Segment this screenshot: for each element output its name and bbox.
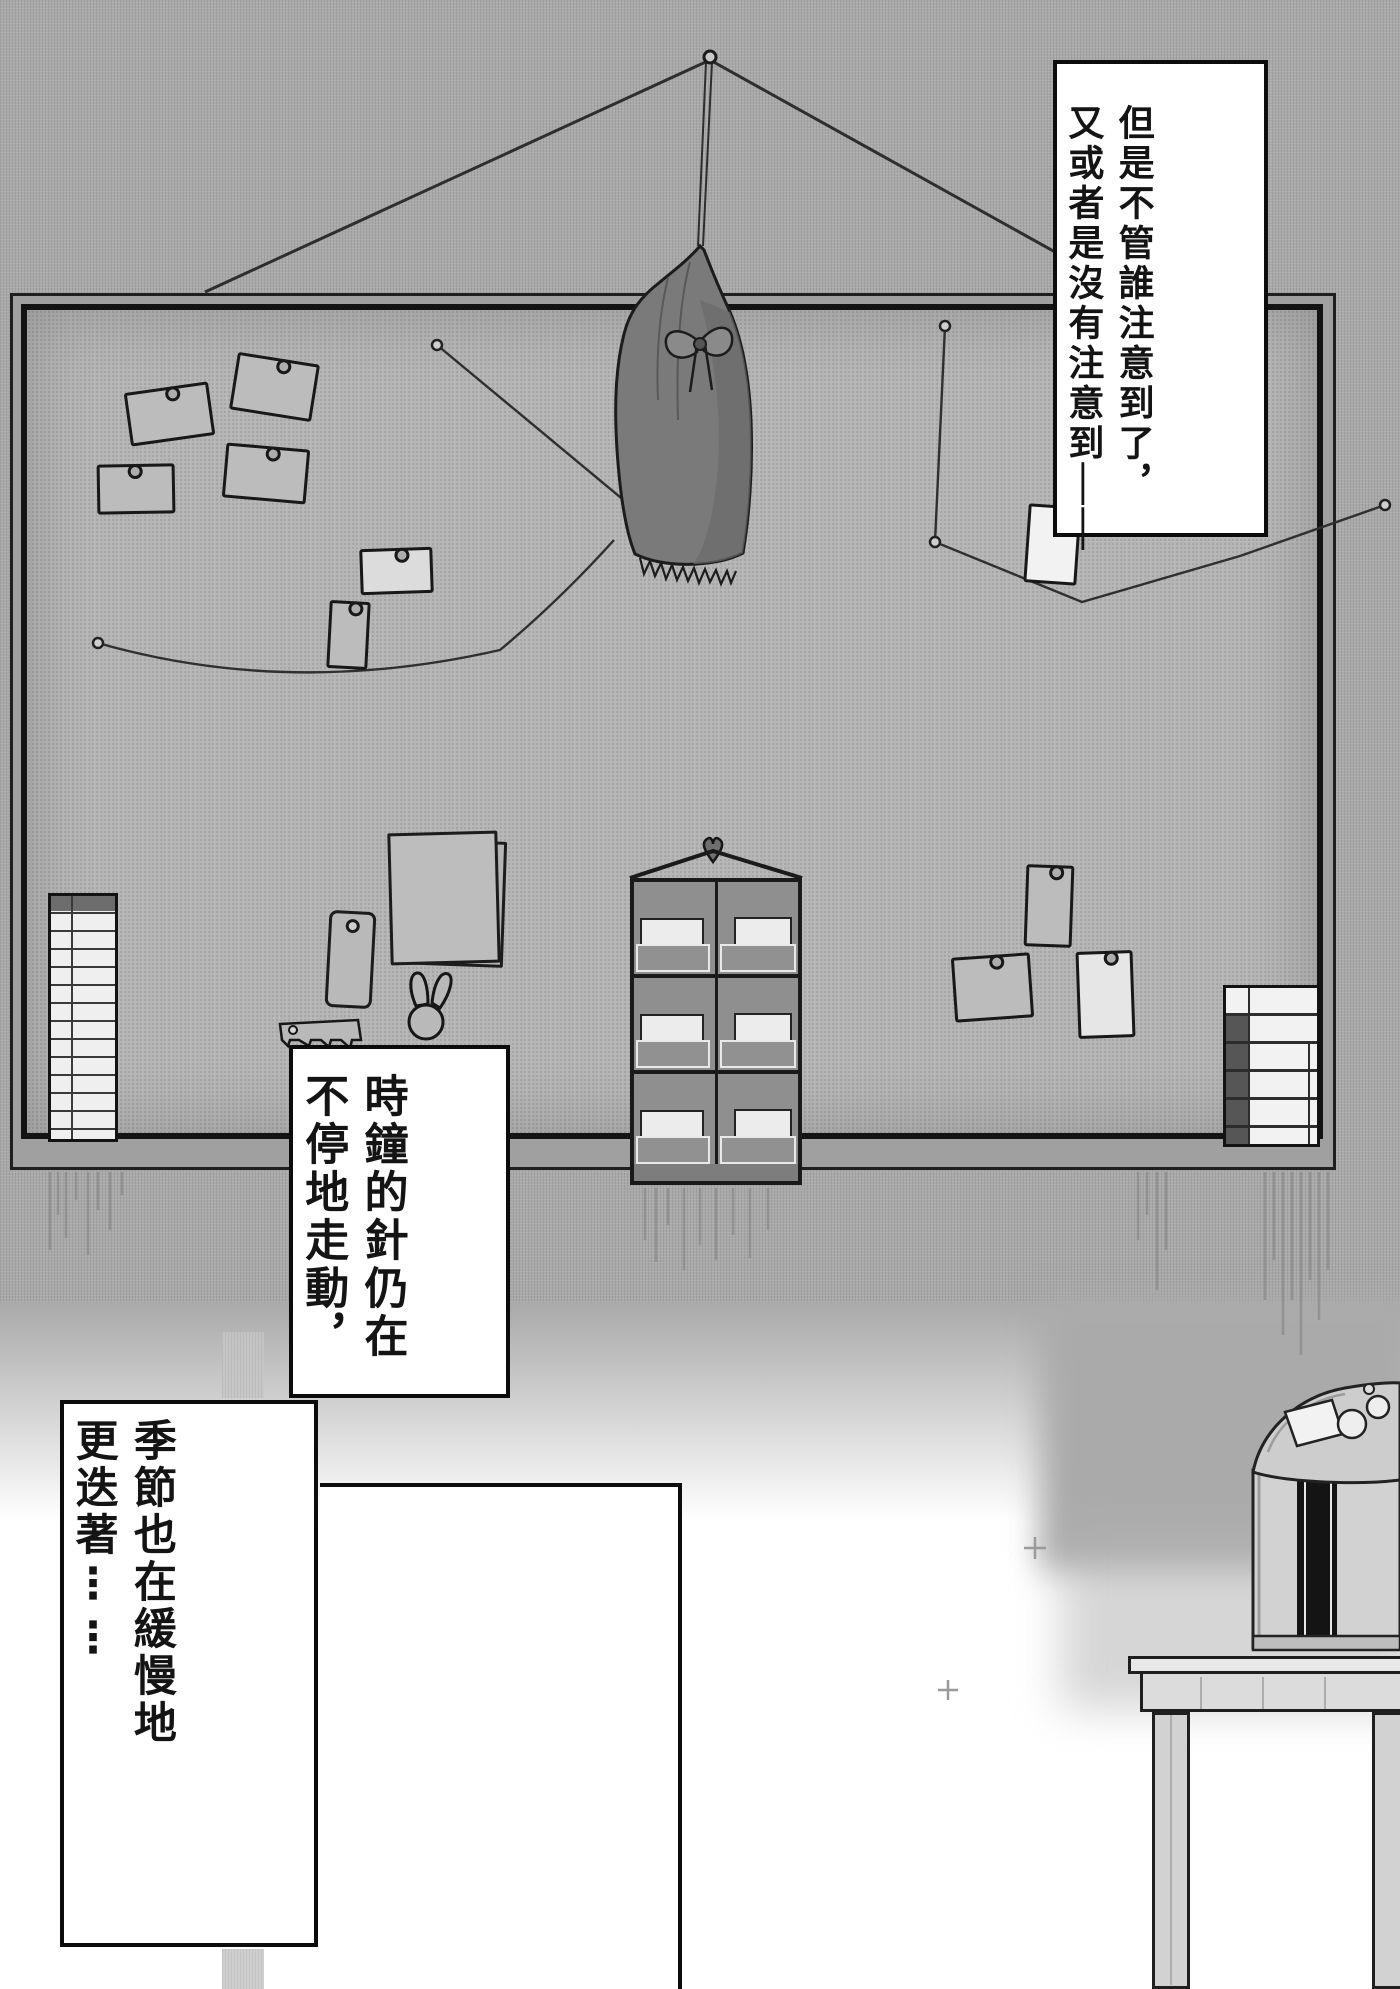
calendar-left (48, 893, 118, 1142)
organizer-pocket (720, 944, 796, 972)
calendar-dark-cell (1226, 1044, 1248, 1069)
cooker-base (1253, 1636, 1400, 1650)
note-card (222, 442, 310, 504)
card-hole (164, 385, 181, 402)
card-hole (275, 358, 292, 375)
card-hole (1049, 865, 1065, 881)
calendar-left-header (51, 896, 115, 911)
narration-text: 不停地走動， (298, 1073, 347, 1361)
narration-clock: 時鐘的針仍在 不停地走動， (289, 1045, 510, 1398)
note-card (359, 547, 434, 596)
push-pin (930, 537, 940, 547)
narration-top-right: 但是不管誰注意到了， 又或者是沒有注意到││ (1053, 60, 1268, 537)
shadow-drips (50, 1172, 1328, 1355)
push-pin (1380, 500, 1390, 510)
cooker-button (1338, 1410, 1366, 1438)
calendar-dark-cell (1226, 1100, 1248, 1125)
push-pin (940, 321, 950, 331)
card-hole (1103, 951, 1119, 967)
narration-text: 又或者是沒有注意到││ (1062, 104, 1102, 554)
narration-text: 季節也在緩慢地 (127, 1418, 175, 1747)
note-card (1024, 864, 1075, 948)
calendar-dark-cell (1226, 1128, 1248, 1144)
note-card (326, 600, 371, 670)
note-card (97, 463, 176, 514)
manga-page: 季節也在緩慢地 更迭著⋮⋮ 時鐘的針仍在 不停地走動， 但是不管誰注意到了， 又… (0, 0, 1400, 1989)
paper-stack (387, 831, 500, 966)
garland-string-upper-left (437, 345, 638, 512)
narration-season: 季節也在緩慢地 更迭著⋮⋮ (60, 1400, 318, 1947)
card-hole (394, 548, 410, 564)
tag-hole (345, 919, 360, 934)
stand-leg-right (1372, 1712, 1400, 1989)
bunny-ear-left (411, 973, 428, 1006)
organizer-pocket (636, 1136, 710, 1164)
note-card (1075, 950, 1135, 1039)
card-hole (989, 954, 1005, 970)
organizer-pocket (720, 1040, 796, 1068)
stand-apron (1140, 1674, 1400, 1712)
bag-bow-left (666, 331, 697, 357)
push-pin (93, 638, 103, 648)
narration-text: 但是不管誰注意到了， (1112, 104, 1152, 504)
narration-text: 時鐘的針仍在 (357, 1073, 406, 1361)
hanging-wire-left (205, 60, 710, 292)
memo-tag (324, 910, 376, 1009)
rice-cooker (1120, 1360, 1400, 1660)
bunny-clip (409, 1005, 443, 1039)
narration-text: 更迭著⋮⋮ (69, 1418, 117, 1667)
cooker-indicator (1364, 1384, 1374, 1394)
calendar-dark-cell (1226, 1016, 1248, 1041)
organizer-pocket (720, 1136, 796, 1164)
organizer-pocket (636, 944, 710, 972)
organizer-pocket (636, 1040, 710, 1068)
bunny-ear-right (432, 974, 451, 1008)
sparkles (938, 1537, 1046, 1700)
push-pin (432, 340, 442, 350)
cooker-button (1367, 1396, 1389, 1418)
bag-knot (694, 338, 706, 350)
ruler-hole (289, 1026, 297, 1034)
card-hole (128, 464, 143, 479)
calendar-dark-cell (1226, 1072, 1248, 1097)
card-hole (265, 446, 281, 462)
pocket-organizer (630, 878, 802, 1185)
card-hole (348, 601, 364, 617)
narration-empty (320, 1483, 682, 1989)
nail-hook (704, 51, 716, 63)
note-card (951, 952, 1034, 1022)
calendar-right (1223, 985, 1320, 1147)
